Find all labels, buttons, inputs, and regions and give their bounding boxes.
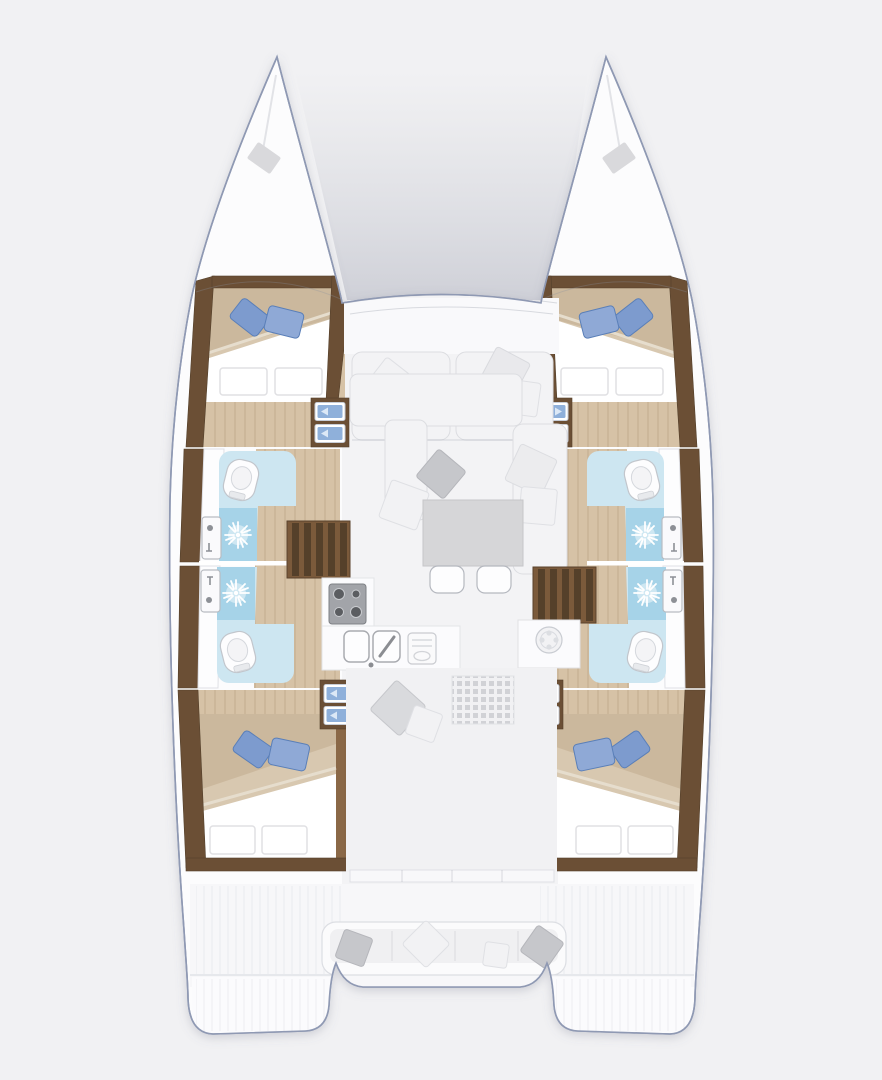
floor-hatch bbox=[452, 676, 514, 724]
stool bbox=[430, 566, 464, 593]
port-staircase bbox=[287, 521, 350, 578]
starboard-staircase bbox=[533, 567, 596, 623]
trampoline-shadow bbox=[295, 72, 588, 300]
floorplan-canvas bbox=[0, 0, 882, 1080]
starboard-transom bbox=[553, 977, 691, 1033]
catamaran-floorplan bbox=[0, 0, 882, 1080]
aft-sliding-door bbox=[350, 870, 554, 882]
cockpit-bench bbox=[322, 920, 566, 975]
aft-cockpit bbox=[190, 884, 694, 987]
aft-walkway bbox=[346, 668, 557, 872]
starboard-counter bbox=[518, 620, 580, 668]
stool bbox=[477, 566, 511, 593]
drainer bbox=[408, 633, 436, 664]
stove bbox=[329, 584, 366, 624]
port-transom bbox=[192, 977, 330, 1033]
salon-table bbox=[423, 500, 523, 566]
